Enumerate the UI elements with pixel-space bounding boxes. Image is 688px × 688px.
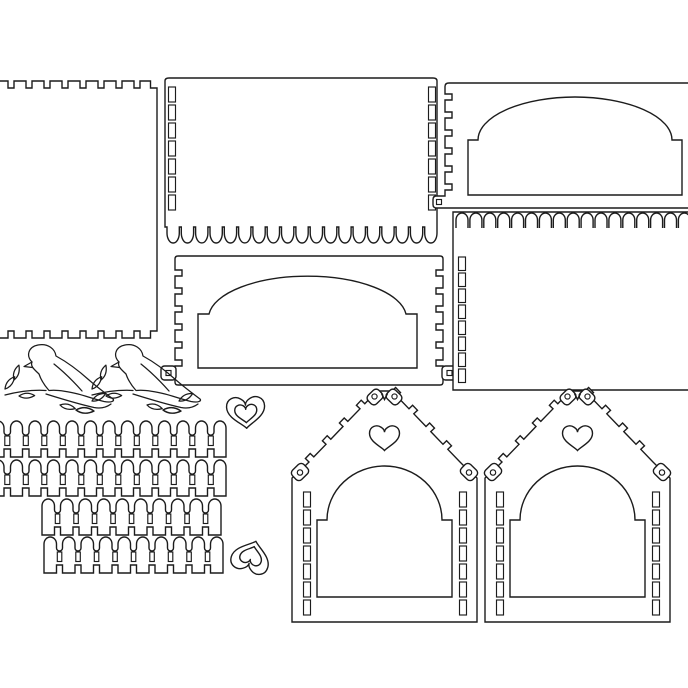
birdhouse-front-part: [290, 387, 480, 622]
picket-fence-part: [0, 421, 226, 457]
bird-silhouette: [2, 345, 113, 417]
picket-fence-part: [0, 460, 226, 496]
heart-ring-charm: [229, 536, 274, 577]
birdhouse-front-part: [483, 387, 673, 622]
picket-fence-part: [42, 499, 221, 535]
back-panel-part: [165, 78, 437, 243]
cutting-template-canvas: [0, 0, 688, 688]
heart-ring-charm: [226, 396, 266, 429]
fringe-panel-part: [453, 212, 688, 390]
side-panel-part: [0, 81, 157, 338]
front-arch-panel-part: [161, 256, 457, 385]
template-viewport: [0, 0, 688, 688]
picket-fence-part: [44, 537, 223, 573]
right-arch-panel-part: [433, 83, 688, 208]
